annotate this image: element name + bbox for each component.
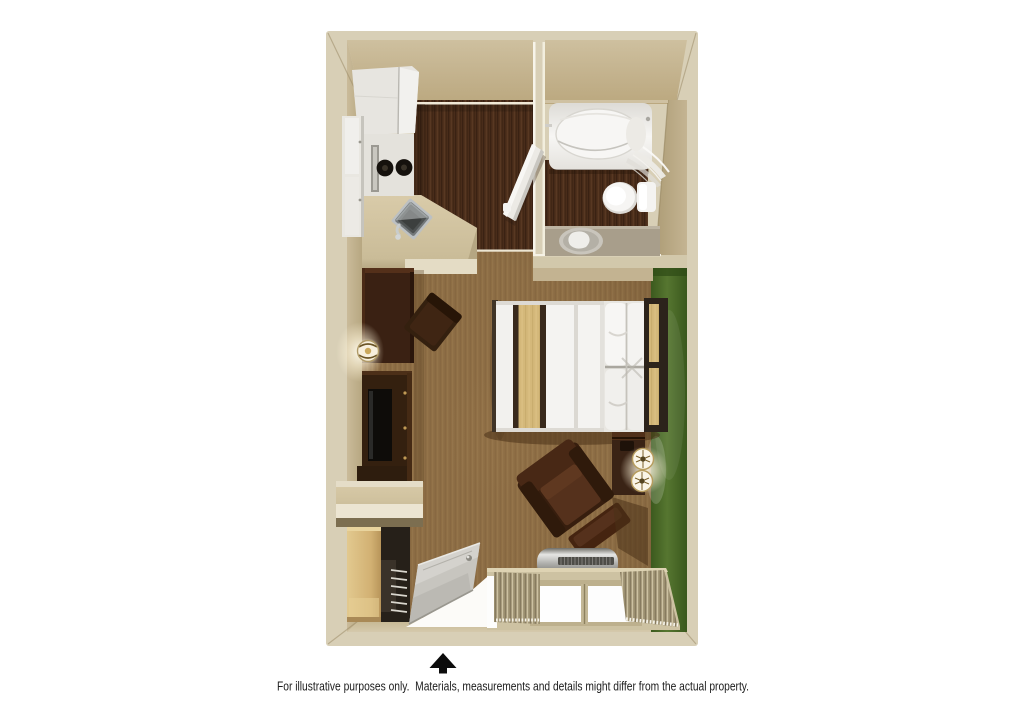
svg-text:For illustrative purposes only: For illustrative purposes only. Material… [277, 680, 749, 694]
